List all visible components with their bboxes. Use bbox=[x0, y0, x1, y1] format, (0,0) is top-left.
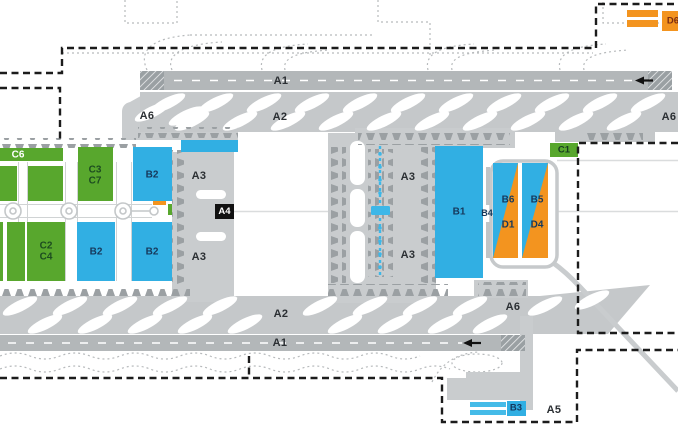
zone-c3-c7 bbox=[78, 147, 113, 201]
d6-bar-1 bbox=[627, 10, 658, 17]
runway-south bbox=[0, 335, 525, 351]
zone-b2-north bbox=[133, 147, 172, 201]
b3-bar-1 bbox=[470, 402, 506, 407]
terminal-strip bbox=[181, 140, 238, 152]
zone-b2-southwest bbox=[77, 222, 115, 281]
zone-c6-bar bbox=[0, 148, 63, 161]
zone-green-sliver bbox=[0, 222, 3, 281]
zone-green-b bbox=[28, 166, 63, 201]
b3-bar-2 bbox=[470, 410, 506, 415]
zone-d6-box bbox=[662, 11, 678, 31]
zone-b2-southeast bbox=[132, 222, 172, 281]
zone-green-c bbox=[7, 222, 25, 281]
zone-c1-box bbox=[550, 143, 578, 157]
zone-c2-c4 bbox=[27, 222, 65, 281]
zone-b3-box bbox=[507, 401, 526, 416]
airport-map: A1 A2 A6 A6 A3 A3 A3 A3 A4 A2 A1 A6 A5 C… bbox=[0, 0, 678, 443]
d6-bar-2 bbox=[627, 20, 658, 27]
airport-map-canvas bbox=[0, 0, 678, 443]
zone-b1 bbox=[435, 146, 483, 278]
marker-a4: A4 bbox=[215, 204, 234, 219]
zone-green-a bbox=[0, 166, 17, 201]
runway-north bbox=[140, 71, 672, 90]
entrance-tick bbox=[168, 204, 172, 215]
